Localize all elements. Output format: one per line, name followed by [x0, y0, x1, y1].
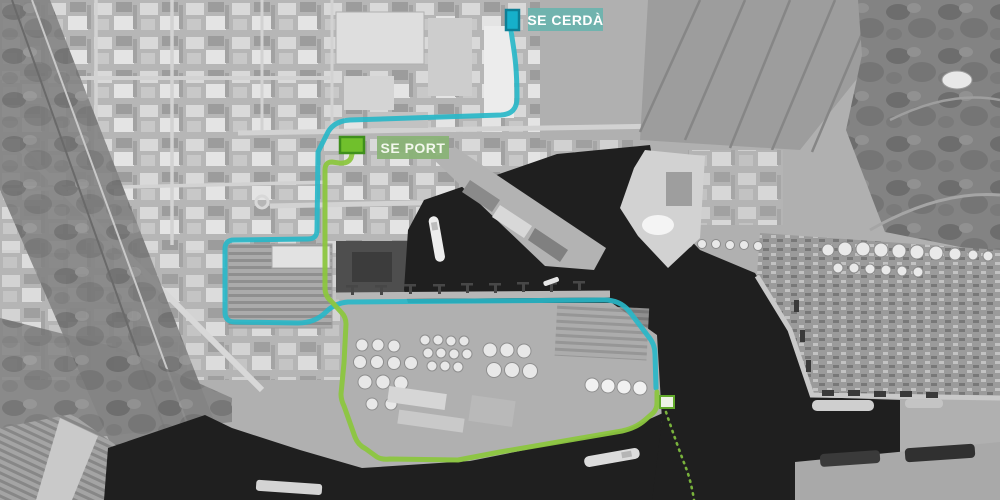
se-cerda-label: SE CERDÀ — [527, 8, 603, 31]
se-cerda-label-text: SE CERDÀ — [527, 12, 603, 28]
se-port-label-text: SE PORT — [381, 140, 446, 156]
se-port-label: SE PORT — [377, 136, 449, 159]
junction-marker — [660, 396, 674, 408]
se-cerda-marker — [506, 10, 519, 30]
se-port-marker — [340, 137, 364, 153]
map-canvas: SE CERDÀ SE PORT — [0, 0, 1000, 500]
satellite-map: SE CERDÀ SE PORT — [0, 0, 1000, 500]
